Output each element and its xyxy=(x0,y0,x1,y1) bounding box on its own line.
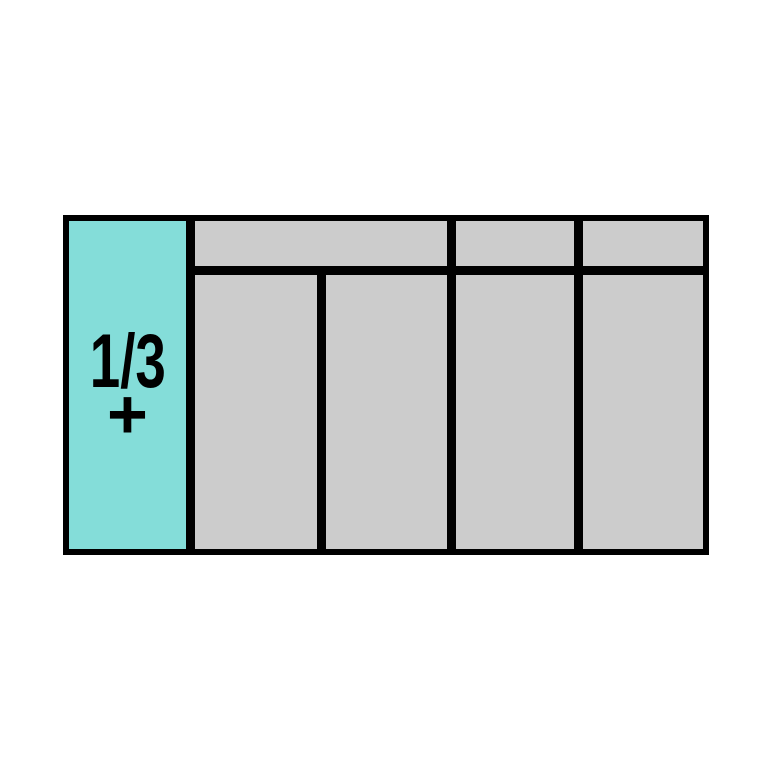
tray-slot-1 xyxy=(195,275,317,549)
diagram-canvas: 1/3 + xyxy=(0,0,772,772)
module-size-label: 1/3 xyxy=(89,334,165,390)
tray-slot-top-wide xyxy=(195,221,447,266)
tray-slot-3 xyxy=(456,275,574,549)
tray-slot-2 xyxy=(326,275,447,549)
tray-slot-top-3 xyxy=(583,221,703,266)
tray-slot-4 xyxy=(583,275,703,549)
tray-slot-top-2 xyxy=(456,221,574,266)
module-size-cell: 1/3 + xyxy=(69,221,186,549)
tray-module-diagram: 1/3 + xyxy=(63,215,709,555)
